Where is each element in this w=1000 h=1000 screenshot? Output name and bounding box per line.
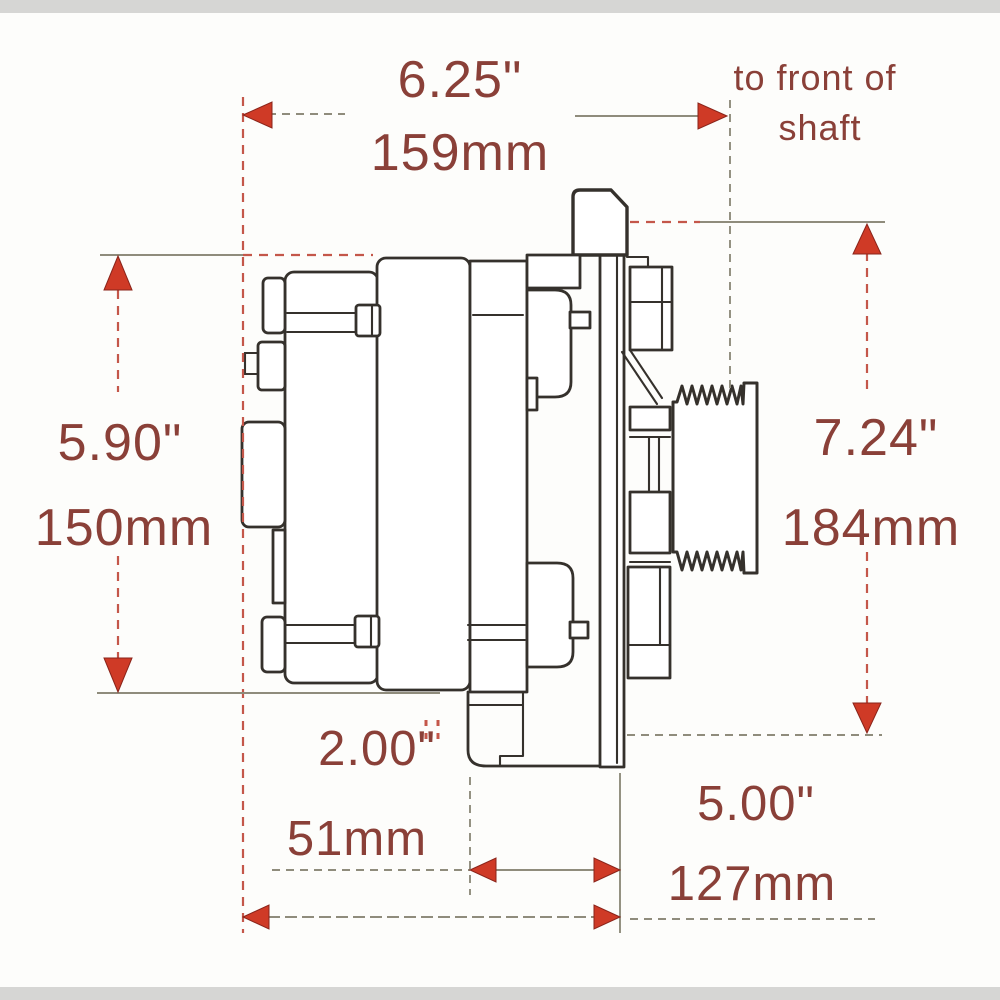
rear-strip [273, 530, 285, 603]
rear-top-boss [263, 278, 285, 333]
alternator-side-view-drawing: 6.25" 159mm to front of shaft 5.90" 150m… [0, 0, 1000, 1000]
flange-top-tab [573, 190, 627, 255]
arrow-length-right [698, 103, 727, 129]
arrow-overall-down [853, 703, 881, 733]
arrow-foot-left [470, 858, 496, 882]
mounting-foot-outline [468, 692, 617, 766]
upper-boss-nub [570, 312, 590, 328]
arrow-flange-left [243, 905, 269, 929]
through-bolt-top-head [356, 305, 380, 336]
serpentine-pulley [673, 383, 757, 573]
label-foot-length-in: 2.00" [318, 722, 436, 776]
label-rear-to-flange-mm: 127mm [668, 857, 836, 911]
dimensional-drawing-page: 6.25" 159mm to front of shaft 5.90" 150m… [0, 0, 1000, 1000]
battery-terminal-stud [245, 353, 258, 374]
label-foot-length-mm: 51mm [287, 812, 427, 866]
upper-mounting-ear [527, 255, 580, 288]
fan-spacer [630, 407, 670, 430]
shaft-section [630, 437, 670, 492]
pulley-spacer [630, 492, 670, 553]
rear-bottom-boss [262, 617, 285, 672]
stator-body [377, 258, 470, 690]
arrow-height-down [104, 658, 132, 692]
lower-bearing-boss [527, 563, 573, 667]
front-housing [470, 261, 527, 692]
lower-boss-nub [570, 622, 588, 638]
arrow-flange-right [594, 905, 620, 929]
battery-terminal-nut [258, 342, 285, 390]
label-rear-to-flange-in: 5.00" [697, 777, 815, 831]
through-bolt-bottom-head [355, 616, 379, 647]
fan-lower-blade [628, 567, 670, 678]
front-face-tab [527, 378, 537, 410]
label-shaft-note-2: shaft [778, 107, 861, 148]
arrow-length-left [243, 102, 272, 128]
label-shaft-note-1: to front of [733, 57, 896, 98]
mounting-foot-detail [468, 692, 523, 766]
fan-blade-diagonals [622, 350, 662, 404]
rear-connector-block [242, 422, 285, 527]
label-body-height-in: 5.90" [58, 414, 183, 472]
cooling-fan [622, 257, 672, 678]
label-overall-height-in: 7.24" [814, 409, 939, 467]
arrow-foot-right [594, 858, 620, 882]
fan-top-step [627, 257, 648, 267]
label-body-height-mm: 150mm [35, 499, 213, 557]
arrow-height-up [104, 256, 132, 290]
label-overall-length-mm: 159mm [371, 124, 549, 182]
mounting-flange-plate [600, 250, 624, 767]
alternator-body [242, 190, 627, 767]
fan-upper-blade [630, 267, 672, 350]
label-overall-length-in: 6.25" [398, 51, 523, 109]
label-overall-height-mm: 184mm [782, 499, 960, 557]
arrow-overall-up [853, 224, 881, 254]
